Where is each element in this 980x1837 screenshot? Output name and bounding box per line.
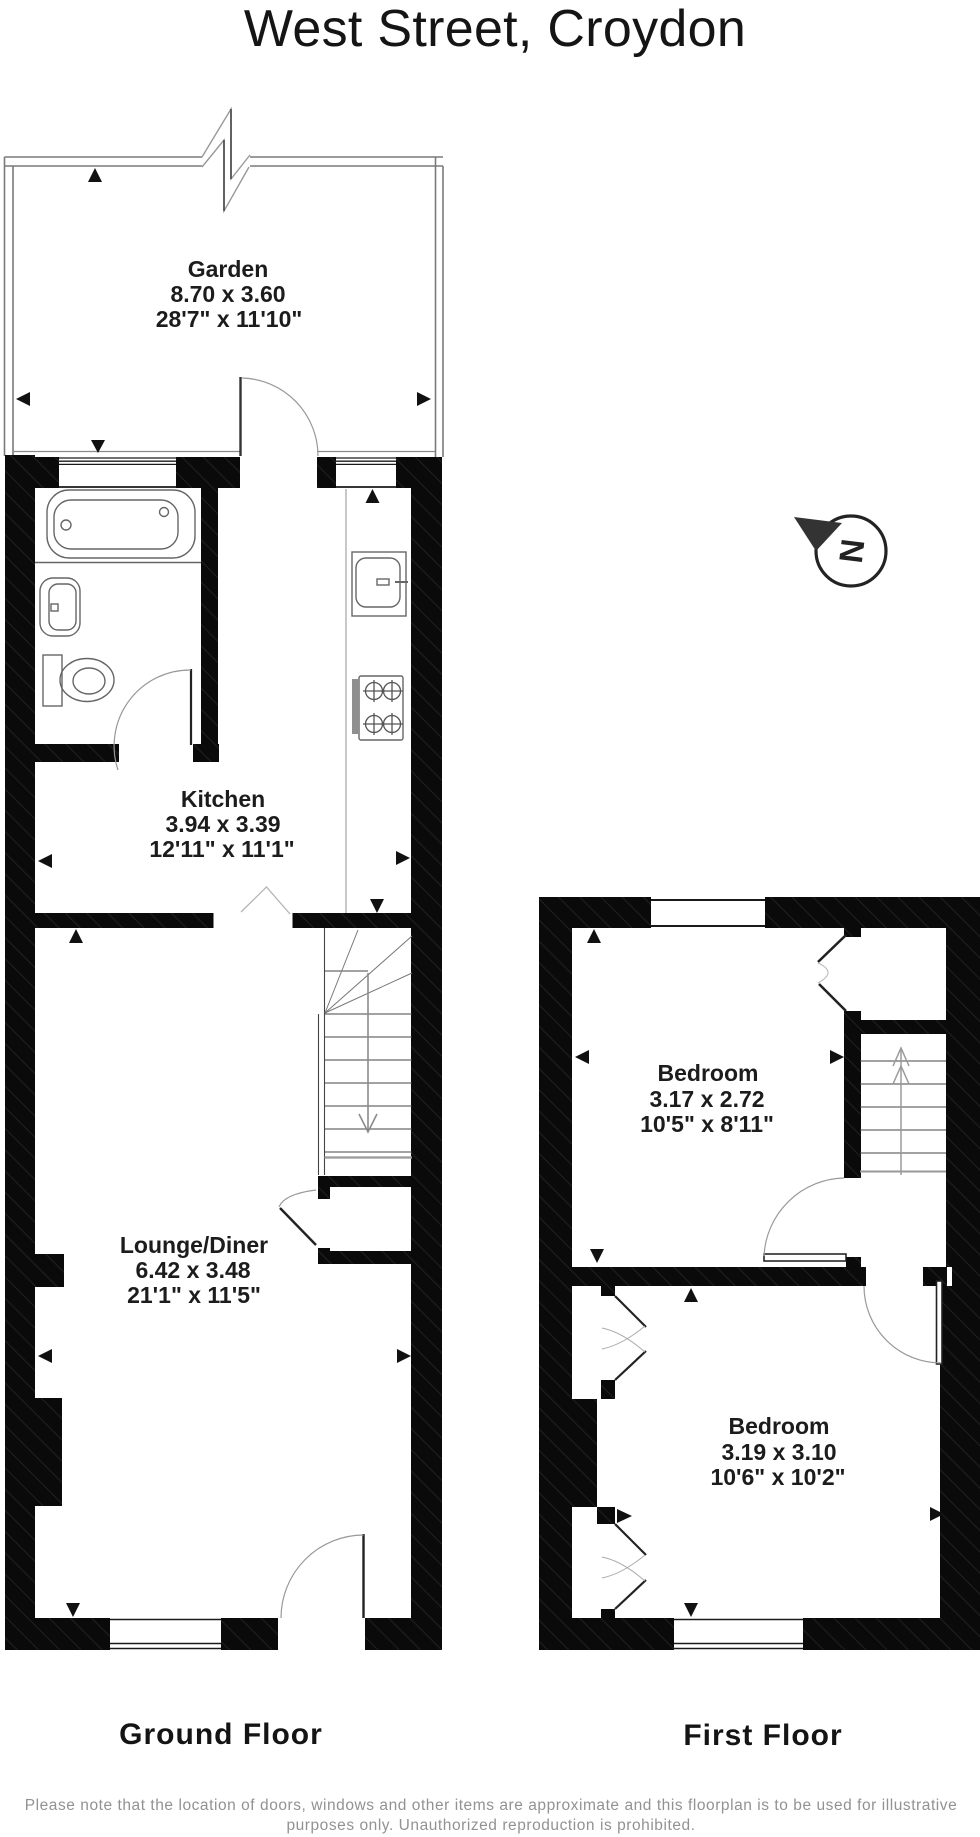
svg-text:8.70 x 3.60: 8.70 x 3.60: [170, 281, 285, 307]
svg-text:3.94 x 3.39: 3.94 x 3.39: [165, 811, 280, 837]
svg-text:West Street, Croydon: West Street, Croydon: [244, 0, 746, 58]
svg-text:Lounge/Diner: Lounge/Diner: [120, 1232, 268, 1258]
svg-text:purposes only. Unauthorized re: purposes only. Unauthorized reproduction…: [286, 1817, 695, 1834]
svg-text:10'6" x 10'2": 10'6" x 10'2": [710, 1464, 845, 1490]
svg-text:Bedroom: Bedroom: [658, 1060, 759, 1086]
svg-text:First Floor: First Floor: [683, 1719, 842, 1752]
svg-text:Kitchen: Kitchen: [181, 786, 265, 812]
svg-text:3.19 x 3.10: 3.19 x 3.10: [721, 1439, 836, 1465]
svg-text:28'7" x 11'10": 28'7" x 11'10": [156, 306, 303, 332]
svg-text:Please note that the location: Please note that the location of doors, …: [25, 1797, 958, 1814]
svg-text:10'5" x 8'11": 10'5" x 8'11": [640, 1111, 774, 1137]
svg-text:Garden: Garden: [188, 256, 269, 282]
svg-text:6.42 x 3.48: 6.42 x 3.48: [135, 1257, 250, 1283]
svg-text:Ground Floor: Ground Floor: [119, 1718, 323, 1751]
svg-text:N: N: [832, 537, 872, 565]
svg-text:Bedroom: Bedroom: [729, 1413, 830, 1439]
svg-text:3.17 x 2.72: 3.17 x 2.72: [649, 1086, 764, 1112]
svg-text:12'11" x 11'1": 12'11" x 11'1": [149, 836, 294, 862]
svg-text:21'1" x 11'5": 21'1" x 11'5": [127, 1282, 261, 1308]
